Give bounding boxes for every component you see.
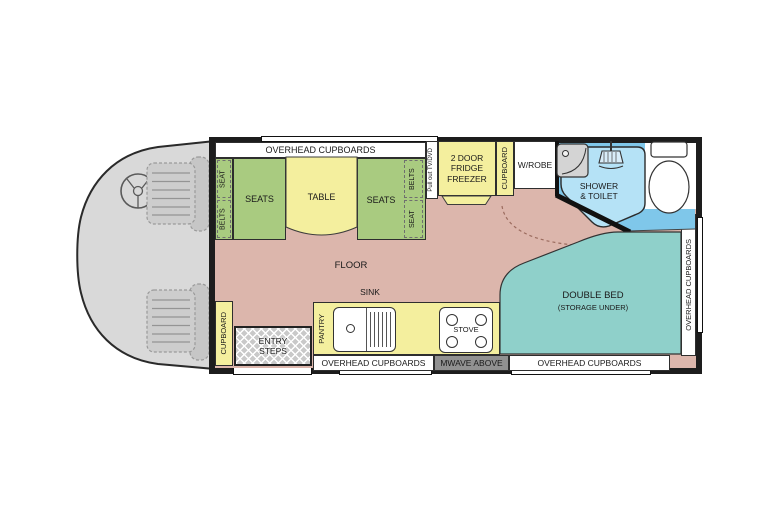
banner-overhead-top-label: OVERHEAD CUPBOARDS [265,145,375,156]
wardrobe-label: W/ROBE [518,160,552,170]
seatbelt-strip-left: SEAT BELTS [215,158,233,240]
wardrobe: W/ROBE [514,141,556,189]
floorplan-canvas: OVERHEAD CUPBOARDS SEAT BELTS SEATS BELT… [0,0,770,514]
sink-drain [346,324,355,333]
sink-unit [333,307,396,352]
passenger-seat [147,284,209,360]
banner-mwave: MWAVE ABOVE [434,355,509,371]
window-top [262,137,437,141]
fridge-label: 2 DOOR FRIDGE FREEZER [447,153,487,184]
dinette-seats-right: BELTS SEAT SEATS [357,158,426,240]
stove: STOVE [439,307,493,353]
banner-overhead-right: OVERHEAD CUPBOARDS [681,214,696,356]
dinette-seats-left: SEATS [233,158,286,240]
banner-overhead-bottom-left: OVERHEAD CUPBOARDS [313,355,434,371]
shower-toilet-label: SHOWER & TOILET [568,179,630,203]
mwave-label: MWAVE ABOVE [440,358,502,368]
seat-label-left: SEAT [217,160,231,198]
entry-steps: ENTRY STEPS [234,326,312,366]
entry-steps-label: ENTRY STEPS [259,336,288,357]
fridge-freezer: 2 DOOR FRIDGE FREEZER [438,141,496,196]
steering-wheel-icon [121,174,155,208]
stove-burner [475,336,487,348]
banner-overhead-bottom-right: OVERHEAD CUPBOARDS [509,355,670,371]
pullout-tv-label: Pull out TV/DVD [428,148,435,192]
pullout-tv-strip: Pull out TV/DVD [426,141,438,199]
cupboard-bottom: CUPBOARD [215,301,233,366]
dinette-seats-right-label: SEATS [358,193,404,207]
cupboard-top: CUPBOARD [496,141,514,196]
table-label: TABLE [286,191,357,203]
belts-label-right: BELTS [404,160,423,198]
window-right [698,218,702,332]
pantry-label: PANTRY [317,314,326,344]
entry-door-gap [234,368,311,374]
belts-label-left: BELTS [217,200,231,238]
stove-burner [446,314,458,326]
sink-drainer-lines [370,312,393,347]
storage-under-label: (STORAGE UNDER) [535,303,651,313]
driver-seat [147,157,209,231]
seat-label-right: SEAT [404,200,423,238]
stove-burner [446,336,458,348]
pantry-strip: PANTRY [313,304,330,353]
sink-label: SINK [345,287,395,298]
banner-overhead-top: OVERHEAD CUPBOARDS [215,142,426,158]
stove-burner [475,314,487,326]
double-bed-label: DOUBLE BED [535,290,651,302]
floor-label: FLOOR [321,260,381,272]
cab-body [77,141,215,369]
sink-divider [366,308,367,351]
stove-label: STOVE [453,325,478,334]
